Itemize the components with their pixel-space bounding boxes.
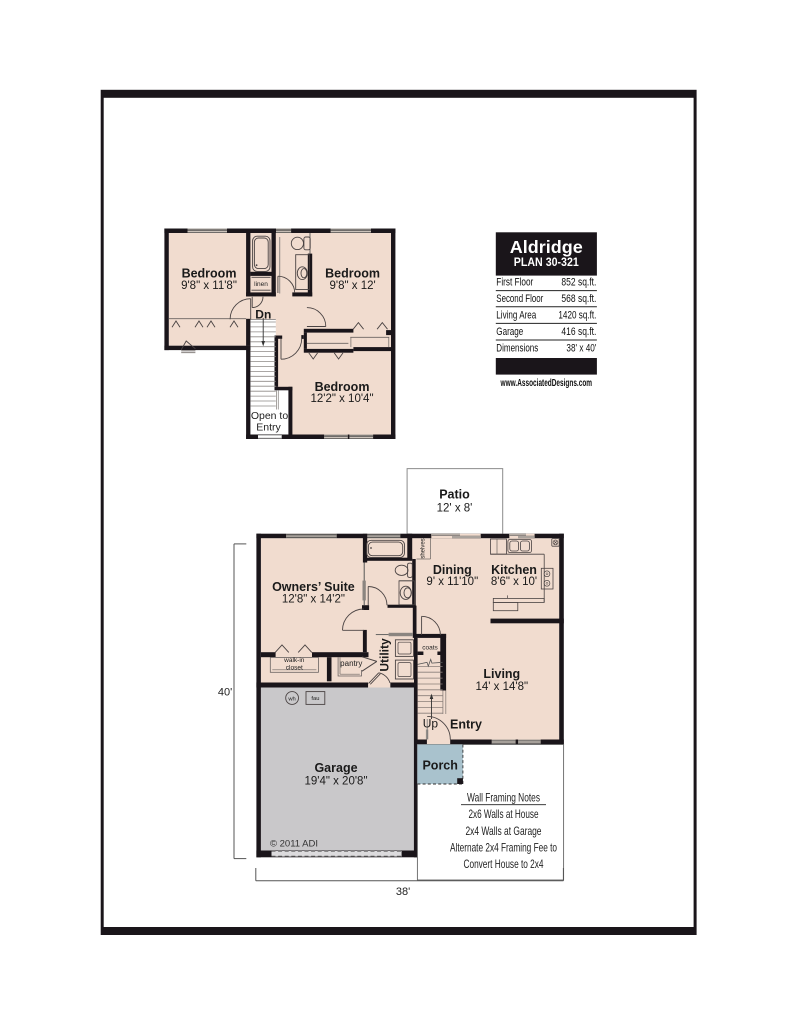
svg-text:pantry: pantry (340, 659, 362, 668)
svg-text:416 sq.ft.: 416 sq.ft. (561, 326, 596, 338)
svg-text:Entry: Entry (450, 718, 482, 732)
svg-text:Bedroom: Bedroom (325, 267, 380, 281)
svg-text:Up: Up (423, 716, 439, 730)
svg-text:852 sq.ft.: 852 sq.ft. (561, 277, 596, 289)
svg-text:Garage: Garage (496, 326, 523, 338)
svg-text:fau: fau (311, 696, 319, 702)
svg-text:www.AssociatedDesigns.com: www.AssociatedDesigns.com (500, 378, 592, 389)
svg-text:Porch: Porch (422, 759, 457, 773)
svg-text:Bedroom: Bedroom (182, 267, 237, 281)
svg-text:coats: coats (422, 644, 438, 651)
svg-text:Open to: Open to (251, 410, 289, 422)
svg-text:38' x 40': 38' x 40' (566, 343, 596, 355)
svg-text:Living Area: Living Area (496, 310, 536, 322)
svg-text:Dimensions: Dimensions (496, 343, 538, 355)
svg-text:1420 sq.ft.: 1420 sq.ft. (558, 310, 596, 322)
svg-text:Utility: Utility (378, 638, 392, 672)
svg-text:Owners’ Suite: Owners’ Suite (272, 580, 355, 594)
svg-text:40': 40' (218, 687, 232, 699)
svg-text:Patio: Patio (439, 488, 470, 502)
svg-text:wh: wh (287, 696, 295, 702)
svg-text:8'6" x 10': 8'6" x 10' (491, 576, 537, 588)
svg-text:Living: Living (483, 667, 520, 681)
svg-text:Entry: Entry (256, 422, 281, 434)
svg-text:closet: closet (286, 664, 303, 671)
svg-text:Wall Framing Notes: Wall Framing Notes (467, 791, 540, 805)
svg-text:First Floor: First Floor (496, 277, 533, 289)
svg-text:2x4 Walls at Garage: 2x4 Walls at Garage (466, 824, 542, 838)
svg-text:PLAN 30-321: PLAN 30-321 (514, 257, 580, 269)
svg-text:Alternate 2x4 Framing Fee to: Alternate 2x4 Framing Fee to (450, 841, 557, 855)
svg-text:shelves: shelves (421, 538, 427, 558)
svg-text:9'8" x 12': 9'8" x 12' (329, 280, 375, 292)
svg-text:© 2011 ADI: © 2011 ADI (270, 839, 318, 850)
svg-text:Dn: Dn (255, 307, 271, 321)
svg-text:Second Floor: Second Floor (496, 293, 543, 305)
svg-text:walk-in: walk-in (283, 657, 305, 664)
svg-text:linen: linen (254, 281, 268, 288)
svg-text:9'8" x 11'8": 9'8" x 11'8" (181, 280, 237, 292)
svg-text:Dining: Dining (433, 563, 472, 577)
svg-text:Bedroom: Bedroom (315, 380, 370, 394)
svg-text:Convert House to 2x4: Convert House to 2x4 (464, 857, 544, 871)
svg-text:Aldridge: Aldridge (510, 237, 583, 257)
svg-text:19'4" x 20'8": 19'4" x 20'8" (304, 776, 367, 788)
svg-text:14' x 14'8": 14' x 14'8" (476, 681, 529, 693)
svg-text:38': 38' (396, 886, 410, 898)
svg-text:12' x 8': 12' x 8' (437, 503, 473, 515)
svg-text:568 sq.ft.: 568 sq.ft. (561, 293, 596, 305)
svg-text:Kitchen: Kitchen (491, 563, 537, 577)
svg-text:2x6 Walls at House: 2x6 Walls at House (469, 807, 539, 821)
svg-text:Garage: Garage (314, 761, 357, 775)
svg-text:12'8" x 14'2": 12'8" x 14'2" (282, 594, 345, 606)
svg-text:12'2" x 10'4": 12'2" x 10'4" (310, 393, 373, 405)
svg-text:9' x 11'10": 9' x 11'10" (426, 576, 478, 588)
